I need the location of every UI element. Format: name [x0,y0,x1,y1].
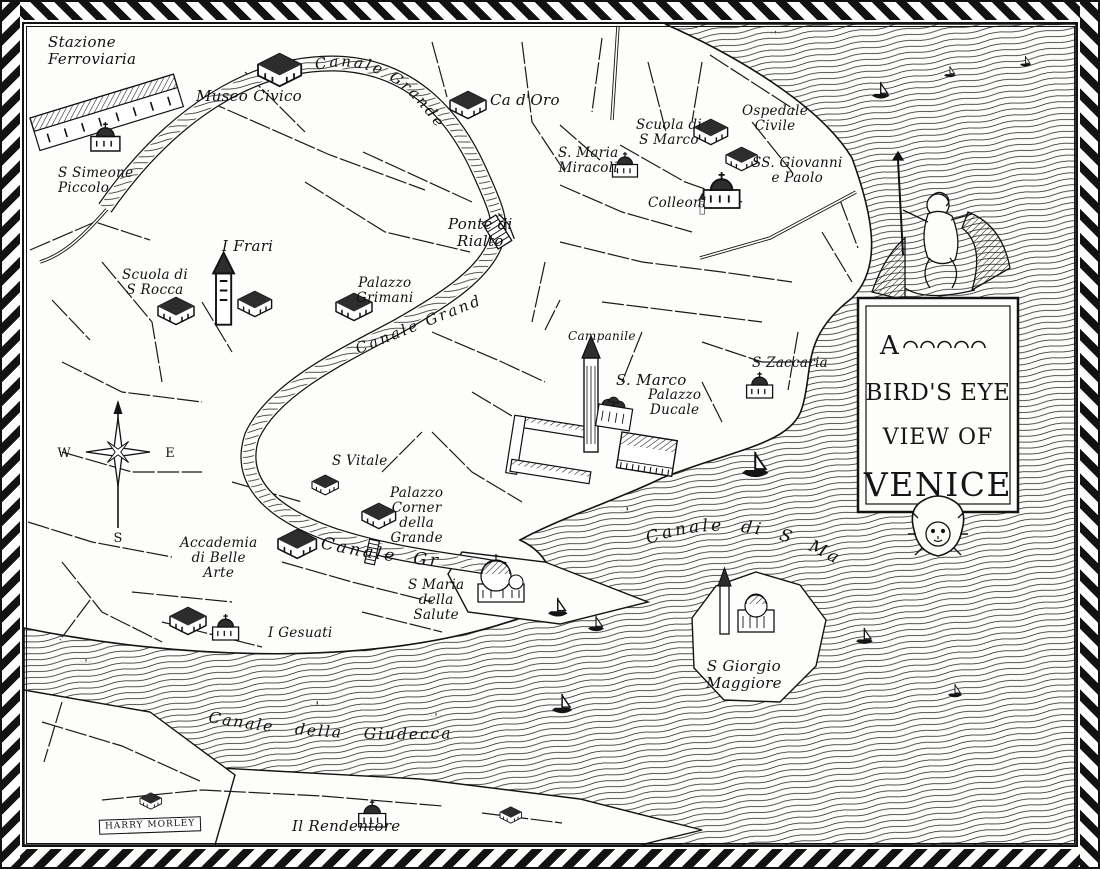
label-ponte-di-rialto: Ponte di Rialto [448,216,513,249]
building-scuola-s-rocca [158,298,194,325]
label-s-maria-miracoli: S. Maria Miracoli [558,146,618,176]
building-ss-giovanni-e-paolo [704,172,740,208]
label-ss-giovanni-e-paolo: SS. Giovanni e Paolo [752,156,843,186]
label-stazione: Stazione Ferroviaria [48,34,136,67]
building-s-vitale [312,475,338,495]
campanile-tower [582,336,600,452]
label-ospedale-civile: Ospedale Civile [742,104,808,134]
label-ca-doro: Ca d'Oro [490,92,560,109]
ribbon-border-left [0,0,20,869]
ribbon-border-right [1080,0,1100,869]
compass-east-label: E [165,446,175,461]
label-colleoni: Colleoni [648,196,707,211]
ribbon-border-bottom [0,849,1100,869]
title-line-view-of: VIEW OF [882,425,994,450]
compass-south-label: S [114,531,123,546]
label-s-giorgio: S Giorgio Maggiore [706,658,782,691]
compass-rose: W E S [57,400,174,546]
building-i-gesuati-church [213,614,239,640]
label-s-maria-salute: S Maria della Salute [408,578,464,623]
venice-map: W E S Canale Grande Canale Grande Canale… [0,0,1100,869]
label-palazzo-corner: Palazzo Corner della Grande [390,486,443,545]
label-campanile: Campanile [568,330,636,343]
label-scuola-s-marco: Scuola di S Marco [636,118,702,148]
building-ca-doro [450,92,486,119]
building-s-zaccaria [747,372,773,398]
label-palazzo-grimani: Palazzo Grimani [356,276,414,306]
label-palazzo-ducale: Palazzo Ducale [648,388,701,418]
label-i-gesuati: I Gesuati [268,626,333,641]
palazzo-ducale-building [616,432,677,476]
label-s-vitale: S Vitale [332,454,388,469]
label-museo-civico: Museo Civico [196,88,302,105]
label-scuola-s-rocca: Scuola di S Rocca [122,268,188,298]
ribbon-border-top [0,0,1100,20]
title-line-birds-eye: BIRD'S EYE [866,380,1011,406]
building-frari-campanile [213,253,234,325]
building-i-gesuati [170,608,206,635]
building-frari [238,291,272,316]
basilica-san-marco [596,395,634,431]
label-s-zaccaria: S Zaccaria [752,356,828,371]
title-line-a: A [879,331,900,361]
label-i-frari: I Frari [222,238,273,255]
label-accademia: Accademia di Belle Arte [180,536,257,581]
compass-west-label: W [57,446,71,461]
map-drawing: W E S Canale Grande Canale Grande Canale… [0,0,1100,869]
label-il-rendentore: Il Rendentore [292,818,400,835]
label-s-simeone: S Simeone Piccolo [58,166,133,196]
